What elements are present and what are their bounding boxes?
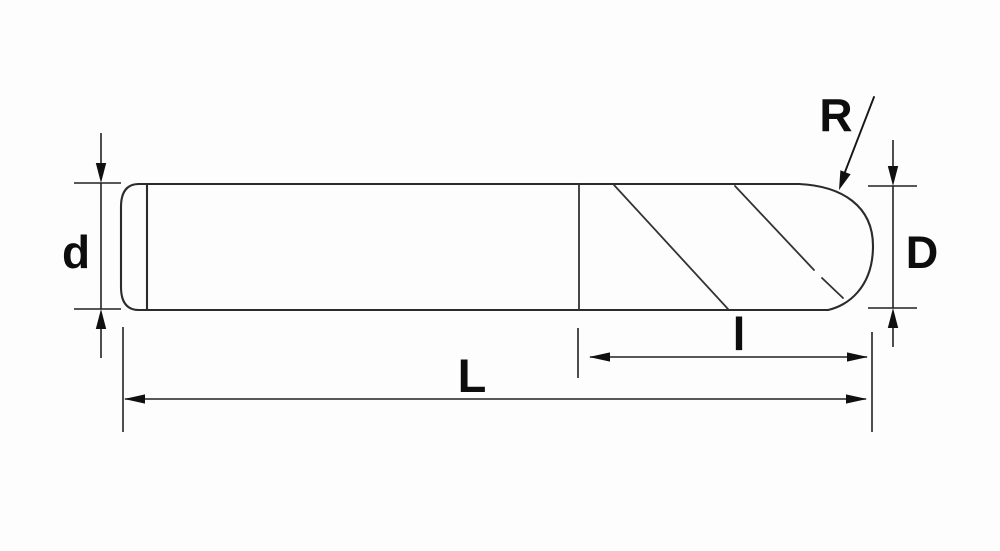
tool-body-outline	[121, 184, 873, 310]
l-arrowhead-right-icon	[847, 352, 868, 361]
D-arrowhead-up-icon	[888, 308, 898, 328]
drawing-canvas: d D R l	[0, 0, 1000, 551]
l-arrowhead-left-icon	[589, 352, 610, 361]
dim-cutting-diameter-D: D	[868, 140, 938, 347]
dim-overall-length-L: L	[123, 327, 867, 432]
L-arrowhead-left-icon	[124, 394, 145, 403]
label-ball-radius-R: R	[819, 89, 852, 141]
dim-shank-diameter-d: d	[62, 133, 121, 358]
D-arrowhead-down-icon	[888, 166, 898, 186]
R-arrowhead-icon	[839, 170, 851, 190]
flute-helix-line-2	[735, 186, 843, 298]
tool-left-end-cap	[121, 184, 139, 310]
d-arrowhead-up-icon	[96, 309, 106, 329]
radius-callout-R: R	[819, 89, 874, 190]
flute-lines	[579, 184, 843, 310]
label-shank-diameter-d: d	[62, 226, 90, 278]
L-arrowhead-right-icon	[846, 394, 867, 403]
label-flute-length-l: l	[733, 308, 746, 360]
label-overall-length-L: L	[458, 349, 487, 402]
end-mill-dimension-drawing: d D R l	[0, 0, 1000, 551]
dim-flute-length-l: l	[578, 308, 872, 432]
label-cutting-diameter-D: D	[906, 227, 939, 278]
flute-helix-line-1	[614, 185, 728, 309]
d-arrowhead-down-icon	[96, 163, 106, 183]
